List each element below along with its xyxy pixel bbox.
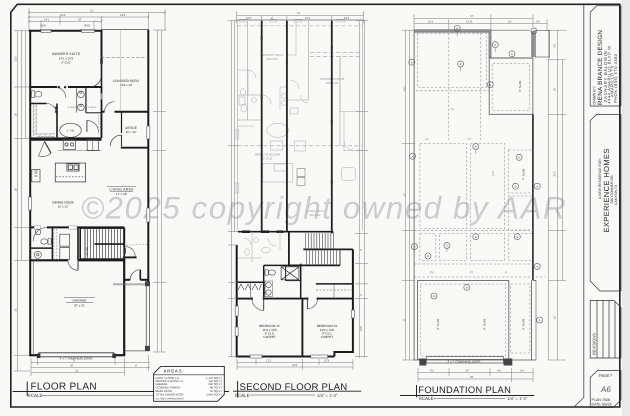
svg-text:9'2: 9'2	[430, 368, 434, 372]
svg-text:4" SLAB: 4" SLAB	[518, 81, 522, 92]
svg-text:9'2: 9'2	[430, 271, 434, 274]
svg-text:B: B	[475, 235, 477, 239]
svg-text:10': 10'	[78, 18, 82, 22]
svg-text:1/4" = 1'-0": 1/4" = 1'-0"	[317, 393, 338, 398]
svg-text:CARPET: CARPET	[321, 335, 334, 339]
svg-text:4" SLAB: 4" SLAB	[522, 319, 526, 330]
svg-text:14'1: 14'1	[44, 18, 50, 22]
svg-text:6' SHLF: 6' SHLF	[89, 106, 97, 109]
svg-text:12'2: 12'2	[266, 359, 272, 363]
svg-text:20' x 21': 20' x 21'	[74, 303, 85, 307]
svg-text:13'2: 13'2	[14, 56, 18, 62]
svg-text:D: D	[518, 155, 520, 159]
svg-text:C: C	[494, 43, 496, 47]
svg-text:4" SLAB: 4" SLAB	[483, 319, 487, 330]
svg-text:PHON (806) 570-3483: PHON (806) 570-3483	[613, 53, 618, 103]
svg-text:FLOOR PLAN: FLOOR PLAN	[31, 382, 97, 393]
svg-text:FOUNDATION PLAN: FOUNDATION PLAN	[418, 384, 511, 395]
svg-text:C: C	[446, 244, 448, 248]
svg-text:A: A	[413, 245, 415, 249]
svg-text:PAGE?: PAGE?	[599, 373, 613, 378]
svg-text:SCALE:: SCALE:	[419, 396, 435, 401]
svg-text:8'7: 8'7	[466, 368, 470, 372]
svg-text:LIVING AREA: LIVING AREA	[109, 188, 134, 192]
svg-text:10' x 10': 10' x 10'	[58, 205, 69, 209]
svg-text:B: B	[516, 235, 518, 239]
svg-text:B: B	[466, 285, 468, 289]
svg-text:21': 21'	[14, 307, 18, 311]
svg-text:REVISIONS: REVISIONS	[592, 333, 597, 355]
svg-text:4'4: 4'4	[520, 368, 524, 372]
svg-text:A: A	[536, 265, 538, 269]
svg-text:A: A	[411, 60, 413, 64]
svg-text:A6: A6	[600, 385, 611, 394]
svg-text:AREAS:: AREAS:	[164, 369, 185, 374]
svg-text:6' TUB: 6' TUB	[67, 129, 75, 132]
svg-text:12': 12'	[451, 108, 455, 111]
svg-text:9' x 7' OVERHEAD DOOR: 9' x 7' OVERHEAD DOOR	[60, 357, 93, 361]
svg-text:1/4" = 1'-0": 1/4" = 1'-0"	[507, 396, 528, 401]
svg-text:4" SLAB: 4" SLAB	[522, 169, 526, 180]
svg-text:51': 51'	[75, 369, 79, 373]
svg-text:3050: 3050	[40, 24, 47, 28]
svg-text:D: D	[511, 52, 513, 56]
svg-text:A: A	[412, 154, 414, 158]
svg-text:10' x 10': 10' x 10'	[126, 130, 137, 134]
svg-text:19'8: 19'8	[120, 13, 126, 17]
svg-text:9' x 7' OVERHEAD DOOR: 9' x 7' OVERHEAD DOOR	[448, 359, 481, 363]
svg-text:9' CLG: 9' CLG	[61, 61, 71, 65]
svg-text:B: B	[515, 184, 517, 188]
svg-text:ALL AREA APPROXIMATE: ALL AREA APPROXIMATE	[156, 398, 185, 401]
svg-text:14'1: 14'1	[428, 20, 434, 24]
svg-text:23'2: 23'2	[403, 86, 407, 92]
svg-text:B: B	[456, 27, 458, 31]
svg-text:24'8: 24'8	[60, 13, 66, 17]
svg-text:11'6: 11'6	[359, 326, 363, 331]
svg-text:10': 10'	[553, 87, 557, 91]
svg-text:15'6: 15'6	[305, 16, 311, 20]
svg-text:OWNERS SUITE: OWNERS SUITE	[52, 52, 81, 56]
svg-text:2,944 SQ FT: 2,944 SQ FT	[206, 393, 222, 397]
svg-text:9'2: 9'2	[425, 138, 429, 141]
svg-text:3050: 3050	[84, 24, 91, 28]
svg-text:12'11: 12'11	[466, 20, 473, 24]
svg-text:13': 13'	[553, 315, 557, 319]
svg-text:17': 17'	[403, 192, 407, 196]
svg-text:CANYON TX: CANYON TX	[614, 184, 618, 205]
svg-text:D: D	[427, 254, 429, 258]
svg-text:DATE 5/6/25: DATE 5/6/25	[592, 403, 612, 407]
svg-text:B: B	[433, 294, 435, 298]
svg-text:C: C	[533, 29, 535, 33]
svg-text:12'4: 12'4	[324, 359, 330, 363]
svg-text:19'8 x 10': 19'8 x 10'	[120, 83, 133, 87]
svg-text:©2025 copyright owned by AAR: ©2025 copyright owned by AAR	[81, 191, 567, 226]
svg-text:21'2: 21'2	[553, 171, 557, 177]
svg-text:DRWN BY:: DRWN BY:	[592, 86, 596, 105]
svg-text:PLAN 7008: PLAN 7008	[592, 398, 610, 402]
svg-text:10': 10'	[14, 112, 18, 116]
svg-text:CARPET: CARPET	[263, 335, 276, 339]
svg-text:SCALE: SCALE	[28, 393, 43, 398]
svg-text:9' CLG: 9' CLG	[263, 157, 273, 161]
svg-text:BELOW: BELOW	[267, 57, 278, 61]
svg-text:27': 27'	[470, 14, 474, 18]
svg-text:5'6: 5'6	[536, 20, 540, 24]
svg-text:24'6: 24'6	[292, 363, 298, 367]
svg-text:B: B	[489, 83, 491, 87]
svg-text:TOTAL UNDER ROOF: TOTAL UNDER ROOF	[156, 393, 185, 397]
svg-text:51': 51'	[90, 9, 94, 13]
svg-text:6' SHLF: 6' SHLF	[68, 106, 76, 109]
svg-text:5'6: 5'6	[553, 43, 557, 47]
svg-text:14': 14'	[508, 20, 512, 24]
svg-text:8'7: 8'7	[468, 138, 472, 141]
svg-text:4'4: 4'4	[497, 368, 501, 372]
svg-text:A: A	[539, 318, 541, 322]
svg-text:B: B	[475, 145, 477, 149]
svg-text:A: A	[536, 184, 538, 188]
svg-text:UP 18R: UP 18R	[86, 247, 89, 256]
svg-text:BELOW: BELOW	[310, 213, 321, 217]
svg-text:17' x 18': 17' x 18'	[116, 192, 127, 196]
svg-text:21'2: 21'2	[492, 171, 495, 176]
svg-text:20': 20'	[70, 364, 74, 368]
svg-text:GARAGE: GARAGE	[72, 298, 87, 302]
svg-text:B: B	[460, 62, 462, 66]
svg-text:8'7: 8'7	[470, 271, 474, 274]
svg-text:18': 18'	[14, 187, 18, 191]
svg-text:51': 51'	[297, 11, 301, 15]
svg-text:21': 21'	[403, 317, 407, 321]
svg-text:50': 50'	[470, 375, 474, 379]
svg-text:SCALE: SCALE	[235, 393, 250, 398]
svg-text:4" SLAB: 4" SLAB	[436, 319, 440, 330]
